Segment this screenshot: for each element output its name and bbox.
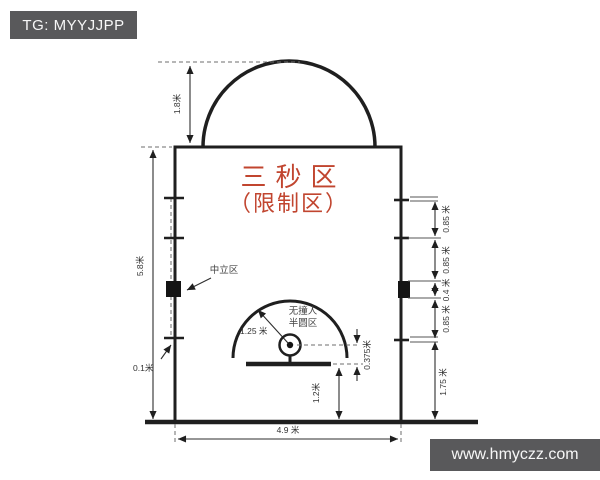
- zone-title-line1: 三秒区: [240, 163, 345, 193]
- dim-mark1-label: 0.85 米: [441, 205, 451, 233]
- dim-mark4-label: 0.85 米: [441, 305, 451, 333]
- dim-rim-to-board-label: 0.375米: [362, 340, 372, 370]
- dim-rim-to-board: 0.375米: [357, 329, 372, 381]
- neutral-zone-label: 中立区: [210, 264, 239, 276]
- dim-arc-height: 1.8米: [158, 62, 300, 143]
- dim-line-offset: 0.1米: [133, 345, 171, 373]
- dim-line-offset-label: 0.1米: [133, 363, 154, 373]
- dim-lane-length-label: 5.8米: [135, 255, 145, 276]
- tg-watermark-text: TG: MYYJJPP: [22, 17, 124, 34]
- neutral-zone-block-right: [398, 281, 410, 298]
- site-watermark-badge: www.hmyczz.com: [430, 439, 600, 471]
- dim-arc-height-label: 1.8米: [172, 93, 182, 114]
- zone-title: 三秒区 （限制区）: [229, 163, 349, 217]
- no-charge-labels: 无撞人 半圆区: [289, 305, 318, 329]
- screenshot-root: 1.8米 5.8米 0.1米: [0, 0, 600, 480]
- dim-lane-marks: 0.85 米 0.85 米 0.4 米 0.85 米 1.75 米: [435, 202, 451, 419]
- dim-lane-width-label: 4.9 米: [277, 425, 300, 435]
- dim-board-to-endline: 1.2米: [311, 368, 339, 419]
- rim-center-dot: [287, 342, 293, 348]
- dim-no-charge-radius-label: 1.25 米: [240, 326, 268, 336]
- tg-watermark-badge: TG: MYYJJPP: [10, 11, 137, 39]
- dim-lane-width: 4.9 米: [175, 424, 401, 444]
- basket-rim: [280, 335, 301, 364]
- extension-lines: [408, 197, 441, 342]
- dim-mark3-label: 0.4 米: [441, 278, 451, 301]
- neutral-zone-callout: 中立区: [187, 264, 239, 290]
- free-throw-arc: [203, 61, 375, 147]
- dim-mark5-label: 1.75 米: [438, 368, 448, 396]
- no-charge-label-line2: 半圆区: [289, 317, 318, 329]
- court-diagram: 1.8米 5.8米 0.1米: [0, 0, 600, 480]
- no-charge-label-line1: 无撞人: [289, 305, 318, 317]
- dim-mark2-label: 0.85 米: [441, 246, 451, 274]
- zone-title-line2: （限制区）: [229, 192, 349, 217]
- neutral-zone-block-left: [166, 281, 181, 297]
- dim-board-to-endline-label: 1.2米: [311, 382, 321, 403]
- site-watermark-text: www.hmyczz.com: [451, 446, 578, 464]
